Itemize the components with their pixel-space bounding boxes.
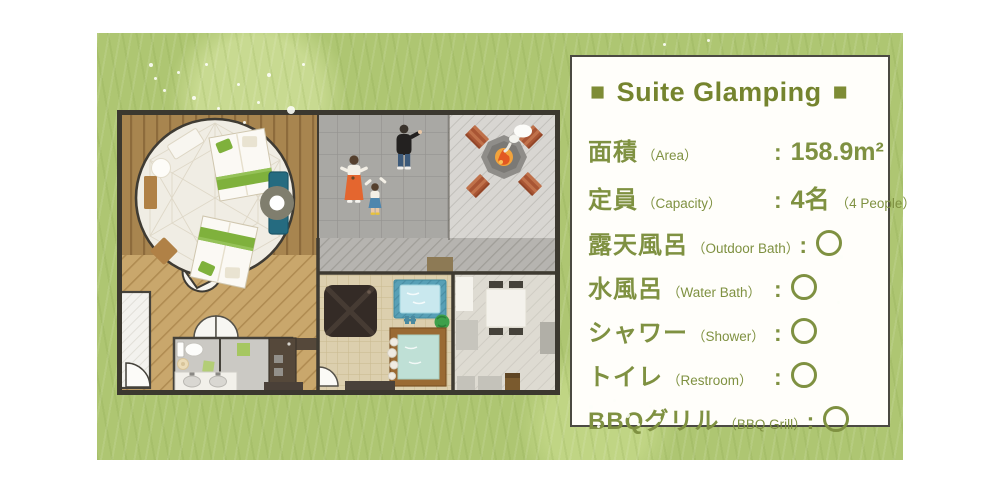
cabinet-brown bbox=[144, 176, 157, 209]
grass-speck bbox=[613, 399, 616, 402]
yes-circle-icon bbox=[791, 318, 817, 344]
water-bath bbox=[388, 328, 446, 386]
capacity-label: 定員 bbox=[588, 180, 638, 215]
grass-speck bbox=[649, 405, 652, 408]
yes-circle-icon bbox=[823, 406, 849, 432]
title-square-left-icon: ■ bbox=[590, 80, 606, 105]
cabinet-gray bbox=[456, 320, 478, 350]
bbq-label-en: （BBQ Grill） bbox=[723, 413, 806, 433]
grass-speck bbox=[302, 63, 305, 66]
grass-speck bbox=[837, 301, 840, 304]
yes-circle-icon bbox=[791, 362, 817, 388]
walkway-step bbox=[427, 257, 453, 272]
grass-speck bbox=[602, 417, 605, 420]
capacity-value: 4名 bbox=[791, 180, 830, 216]
grass-speck bbox=[217, 107, 220, 110]
spec-row-capacity: 定員 （Capacity） : 4名 （4 People） bbox=[588, 180, 872, 216]
counter-white bbox=[456, 277, 473, 311]
toilet bbox=[177, 342, 203, 357]
tile-patio bbox=[318, 112, 449, 240]
grass-speck bbox=[154, 77, 157, 80]
grass-speck bbox=[707, 39, 710, 42]
grass-speck bbox=[839, 255, 843, 259]
bbq-label: BBQグリル bbox=[588, 401, 719, 436]
bath-mat-small bbox=[202, 360, 214, 372]
capacity-note: （4 People） bbox=[836, 192, 916, 212]
shower-stall bbox=[120, 292, 150, 388]
card-title-text: Suite Glamping bbox=[617, 77, 822, 108]
spec-row-restroom: トイレ （Restroom） : bbox=[588, 357, 872, 392]
grass-speck bbox=[237, 83, 240, 86]
bed-lower bbox=[190, 216, 258, 288]
grass-background: ■ Suite Glamping ■ 面積 （Area） : 158.9m² 定… bbox=[97, 33, 903, 460]
grass-speck bbox=[163, 89, 166, 92]
dining-table-set bbox=[486, 281, 526, 335]
spec-row-area: 面積 （Area） : 158.9m² bbox=[588, 132, 872, 167]
bath-mat bbox=[237, 343, 250, 356]
grass-speck bbox=[625, 413, 630, 418]
yes-circle-icon bbox=[816, 230, 842, 256]
dining-table bbox=[486, 289, 526, 327]
grass-speck bbox=[257, 101, 260, 104]
spec-row-water-bath: 水風呂 （Water Bath） : bbox=[588, 269, 872, 304]
grass-speck bbox=[205, 63, 208, 66]
yes-circle-icon bbox=[791, 274, 817, 300]
grass-speck bbox=[663, 43, 666, 46]
spec-row-outdoor-bath: 露天風呂 （Outdoor Bath） : bbox=[588, 225, 872, 260]
shower-label: シャワー bbox=[588, 313, 688, 348]
grass-speck bbox=[149, 63, 153, 67]
shower-label-en: （Shower） bbox=[692, 325, 765, 345]
grass-speck bbox=[267, 73, 271, 77]
water-bath-label-en: （Water Bath） bbox=[667, 281, 761, 301]
floor-plan bbox=[117, 110, 560, 395]
grass-speck bbox=[177, 71, 180, 74]
info-card: ■ Suite Glamping ■ 面積 （Area） : 158.9m² 定… bbox=[570, 55, 890, 427]
area-value: 158.9m² bbox=[791, 138, 884, 167]
spec-row-bbq: BBQグリル （BBQ Grill） : bbox=[588, 401, 872, 436]
water-bath-label: 水風呂 bbox=[588, 269, 663, 304]
restroom-label: トイレ bbox=[588, 357, 663, 392]
grass-speck bbox=[657, 418, 661, 422]
restroom-label-en: （Restroom） bbox=[667, 369, 753, 389]
side-table bbox=[152, 159, 171, 178]
grass-speck bbox=[192, 96, 196, 100]
area-label: 面積 bbox=[588, 132, 638, 167]
title-square-right-icon: ■ bbox=[833, 80, 849, 105]
area-label-en: （Area） bbox=[642, 144, 698, 164]
grass-speck bbox=[287, 106, 295, 114]
bed-upper bbox=[209, 128, 275, 201]
card-title: ■ Suite Glamping ■ bbox=[590, 77, 872, 108]
spec-row-shower: シャワー （Shower） : bbox=[588, 313, 872, 348]
glamping-infographic: ■ Suite Glamping ■ 面積 （Area） : 158.9m² 定… bbox=[0, 0, 1000, 500]
grass-speck bbox=[637, 423, 640, 426]
capacity-label-en: （Capacity） bbox=[642, 192, 722, 212]
grass-speck bbox=[597, 425, 600, 428]
grass-speck bbox=[589, 405, 593, 409]
outdoor-bath-label: 露天風呂 bbox=[588, 225, 688, 260]
double-sink bbox=[175, 372, 237, 391]
grass-speck bbox=[243, 121, 246, 124]
outdoor-bath-label-en: （Outdoor Bath） bbox=[692, 237, 799, 257]
